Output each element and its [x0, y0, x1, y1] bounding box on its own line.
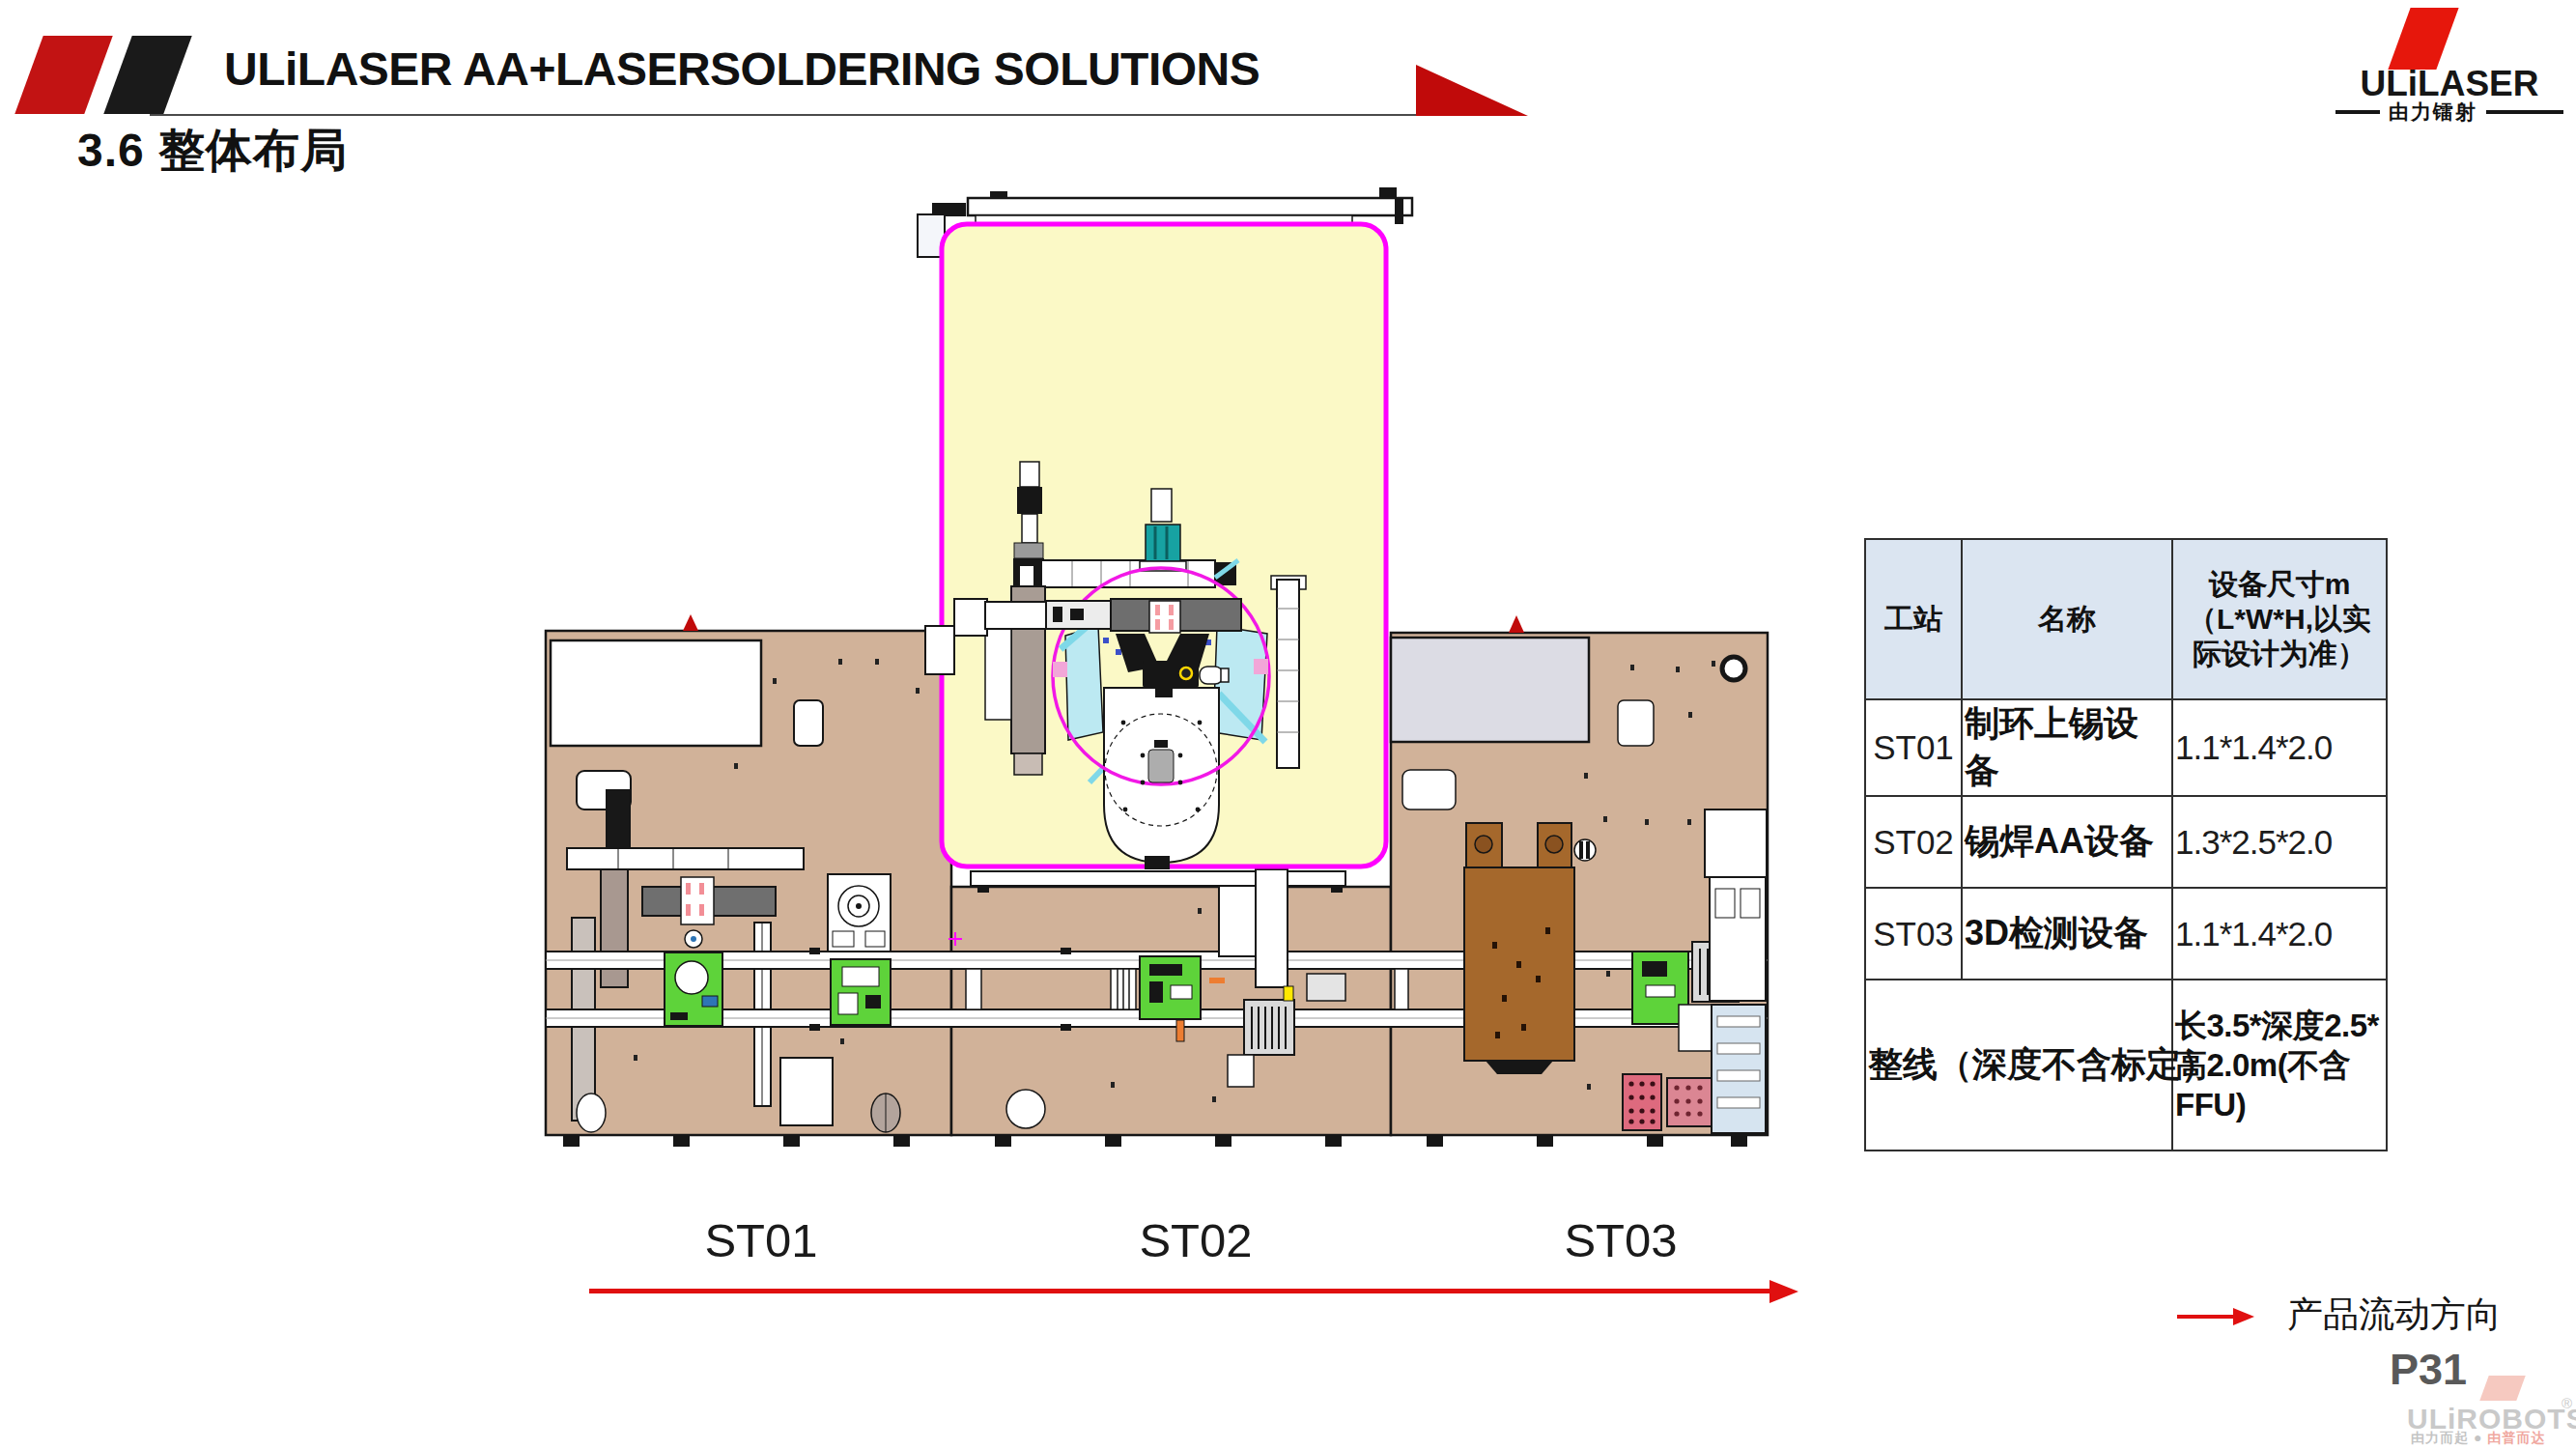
station-name: 制环上锡设备	[1962, 699, 2172, 796]
station-id: ST02	[1865, 796, 1962, 888]
logo-subtitle-row: 由力镭射	[2328, 99, 2571, 126]
header-divider	[150, 114, 1416, 116]
col-header-name: 名称	[1962, 539, 2172, 699]
table-row: ST03 3D检测设备 1.1*1.4*2.0	[1865, 888, 2387, 980]
machine-layout-diagram	[522, 179, 1787, 1205]
watermark-tagline-dot: ●	[2474, 1430, 2482, 1445]
table-footer-row: 整线（深度不含标定） 长3.5*深度2.5*高2.0m(不含FFU)	[1865, 980, 2387, 1151]
header-red-parallelogram	[14, 36, 112, 114]
watermark-tagline-right: 由普而达	[2487, 1430, 2545, 1445]
line-total-label: 整线（深度不含标定）	[1865, 980, 2172, 1151]
watermark-tagline: 由力而起 ● 由普而达	[2411, 1430, 2545, 1447]
watermark-tagline-left: 由力而起	[2411, 1430, 2469, 1445]
legend-arrow-icon	[2177, 1315, 2233, 1319]
station-size: 1.3*2.5*2.0	[2172, 796, 2387, 888]
header-black-parallelogram	[103, 36, 191, 114]
header-red-triangle	[1416, 65, 1528, 116]
col-header-station: 工站	[1865, 539, 1962, 699]
logo-dash-left	[2335, 110, 2380, 114]
page-number: P31	[2390, 1345, 2467, 1395]
station-label-st01: ST01	[694, 1213, 829, 1267]
flow-direction-arrow	[589, 1289, 1769, 1293]
station-label-st02: ST02	[1128, 1213, 1263, 1267]
table-row: ST02 锡焊AA设备 1.3*2.5*2.0	[1865, 796, 2387, 888]
logo-dash-right	[2486, 110, 2563, 114]
flow-direction-label: 产品流动方向	[2287, 1291, 2502, 1339]
line-total-size: 长3.5*深度2.5*高2.0m(不含FFU)	[2172, 980, 2387, 1151]
station-name: 锡焊AA设备	[1962, 796, 2172, 888]
slide: ULiLASER AA+LASERSOLDERING SOLUTIONS 3.6…	[0, 0, 2576, 1449]
watermark-parallelogram-icon	[2479, 1376, 2525, 1401]
station-name: 3D检测设备	[1962, 888, 2172, 980]
station-size: 1.1*1.4*2.0	[2172, 888, 2387, 980]
watermark-registered-icon: ®	[2562, 1395, 2572, 1411]
station-label-st03: ST03	[1553, 1213, 1688, 1267]
page-title: ULiLASER AA+LASERSOLDERING SOLUTIONS	[224, 43, 1260, 96]
section-title: 3.6 整体布局	[77, 120, 348, 182]
table-row: ST01 制环上锡设备 1.1*1.4*2.0	[1865, 699, 2387, 796]
station-id: ST03	[1865, 888, 1962, 980]
station-size: 1.1*1.4*2.0	[2172, 699, 2387, 796]
station-spec-table: 工站 名称 设备尺寸m（L*W*H,以实际设计为准） ST01 制环上锡设备 1…	[1864, 538, 2388, 1151]
logo-red-parallelogram-icon	[2388, 8, 2458, 70]
col-header-size: 设备尺寸m（L*W*H,以实际设计为准）	[2172, 539, 2387, 699]
logo-subtitle: 由力镭射	[2389, 99, 2477, 126]
station-id: ST01	[1865, 699, 1962, 796]
